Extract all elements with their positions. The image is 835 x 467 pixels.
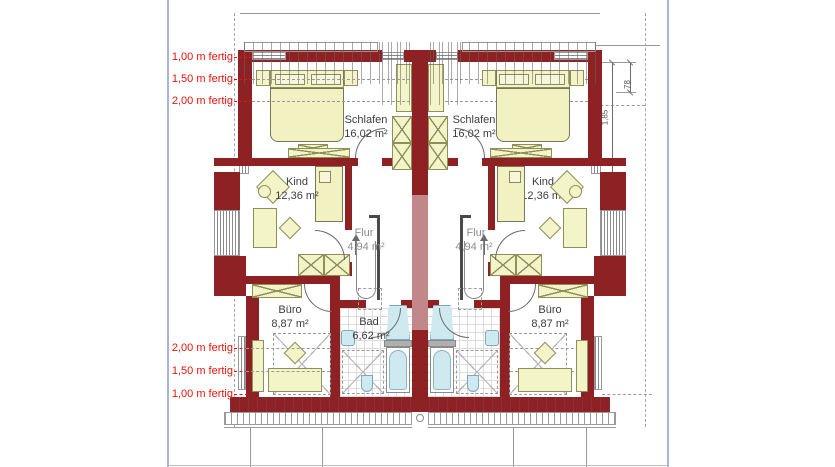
window (214, 210, 240, 256)
stool (569, 185, 582, 198)
wall-segment (214, 276, 332, 284)
stair-railing (460, 215, 471, 218)
wall-segment (600, 172, 626, 210)
nightstand (482, 70, 496, 86)
stair-direction-arrow (480, 234, 488, 241)
guide-line (250, 428, 251, 467)
desk (563, 208, 587, 248)
pillow (499, 74, 529, 85)
wall-segment (482, 158, 488, 166)
bathtub (430, 347, 454, 393)
wardrobe (428, 116, 448, 170)
pillow (535, 74, 565, 85)
window (436, 52, 458, 60)
double-bed (496, 88, 570, 142)
door-arc-schlafen (455, 128, 485, 158)
shelf (576, 340, 588, 392)
party-wall (412, 50, 428, 195)
wall-segment (238, 50, 252, 160)
single-bed (497, 166, 525, 222)
wall-segment (508, 276, 626, 284)
guide-line (322, 428, 323, 467)
door-arc-buero (508, 284, 536, 312)
height-label: 1,50 m fertig (172, 365, 233, 377)
room-label: Flur (355, 227, 374, 239)
height-label: 2,00 m fertig (172, 342, 233, 354)
terrace-outline (224, 427, 412, 428)
door-arc-buero (304, 284, 332, 312)
room-area: 12,36 m² (275, 190, 318, 202)
window (252, 52, 286, 60)
room-label: Kind (286, 176, 308, 188)
party-wall (412, 330, 428, 412)
page-edge-right (667, 0, 669, 467)
height-contour (246, 348, 330, 349)
chair (539, 217, 562, 240)
window (554, 52, 588, 60)
double-bed (270, 88, 344, 142)
nightstand (256, 70, 270, 86)
unit-left (210, 13, 412, 427)
sideboard (490, 148, 552, 158)
single-bed (315, 166, 343, 222)
height-leader (234, 57, 252, 58)
page-edge-left (167, 0, 169, 467)
eaves-outline (244, 42, 378, 52)
wall-segment (428, 397, 610, 412)
stair-headroom-dash (358, 288, 382, 310)
height-label: 1,50 m fertig (172, 73, 233, 85)
wall-segment (345, 166, 352, 230)
bottom-guide-line (168, 465, 668, 466)
party-wall-lower (412, 195, 428, 330)
window (594, 336, 602, 390)
guide-line (586, 428, 587, 467)
sideboard (288, 148, 350, 158)
closet (396, 64, 412, 112)
stool (258, 185, 271, 198)
room-label: Bad (359, 316, 379, 328)
wall-segment (352, 158, 358, 166)
eaves-outline (462, 42, 596, 52)
door-arc-kind (315, 230, 345, 260)
wall-segment (214, 172, 240, 210)
wall-segment (230, 397, 412, 412)
room-label: Schlafen (345, 114, 388, 126)
height-label: 2,00 m fertig (172, 95, 233, 107)
toilet (467, 375, 479, 392)
floorplan-canvas: 1,00 m fertig 1,50 m fertig 2,00 m ferti… (0, 0, 835, 467)
tub-ledge (428, 340, 456, 347)
stair-railing (369, 215, 380, 218)
window (238, 336, 246, 390)
wall-segment (428, 50, 436, 62)
nightstand (344, 70, 358, 86)
room-area: 6,62 m² (352, 330, 389, 342)
wall-segment (588, 50, 602, 160)
sideboard (252, 284, 302, 298)
height-leader (234, 101, 252, 102)
wall-segment (488, 158, 626, 166)
unit-right (428, 13, 630, 427)
window (382, 52, 404, 60)
bathtub (386, 347, 410, 393)
height-contour (252, 101, 410, 102)
door-arc-kind (495, 230, 525, 260)
center-marker (416, 414, 424, 422)
height-label: 1,00 m fertig (172, 388, 233, 400)
height-leader (234, 394, 248, 395)
desk (518, 368, 572, 392)
room-area: 4,94 m² (347, 241, 384, 253)
stair-arrow-line (484, 241, 485, 255)
bed-headboard (496, 70, 570, 88)
room-area: 8,87 m² (271, 318, 308, 330)
sideboard (538, 284, 588, 298)
wardrobe (392, 116, 412, 170)
eaves-dash-right (645, 13, 646, 427)
chair (279, 217, 302, 240)
height-label: 1,00 m fertig (172, 51, 233, 63)
nightstand (570, 70, 584, 86)
guide-line (513, 428, 514, 467)
desk (253, 208, 277, 248)
sink (485, 330, 499, 346)
height-contour (246, 371, 330, 372)
terrace-band (224, 412, 412, 425)
closet (428, 64, 444, 112)
room-label: Büro (278, 304, 301, 316)
wall-segment (214, 158, 352, 166)
height-contour (252, 79, 410, 80)
wall-segment (488, 166, 495, 230)
terrace-outline (428, 427, 616, 428)
height-leader (234, 79, 252, 80)
window (600, 210, 626, 256)
terrace-band (428, 412, 616, 425)
toilet (361, 375, 373, 392)
stair-headroom-dash (458, 288, 482, 310)
room-area: 16,02 m² (344, 128, 387, 140)
